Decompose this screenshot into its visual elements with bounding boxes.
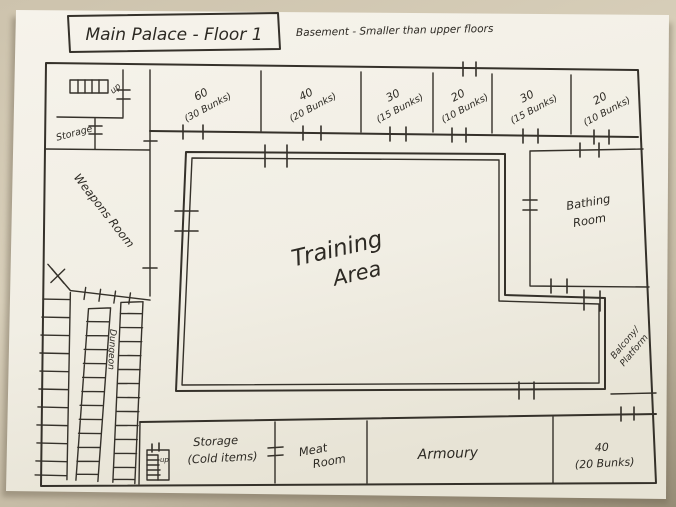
stairs-up-label: up <box>160 456 169 464</box>
page-title: Main Palace - Floor 1 <box>85 25 262 45</box>
armoury-label: Armoury <box>416 445 479 463</box>
floor-plan-sketch: Main Palace - Floor 1 Basement - Smaller… <box>0 0 676 507</box>
photo-of-floor-plan: Main Palace - Floor 1 Basement - Smaller… <box>0 0 676 507</box>
bunks40-line1: 40 <box>594 441 609 455</box>
storage-cold-line1: Storage <box>193 433 239 449</box>
